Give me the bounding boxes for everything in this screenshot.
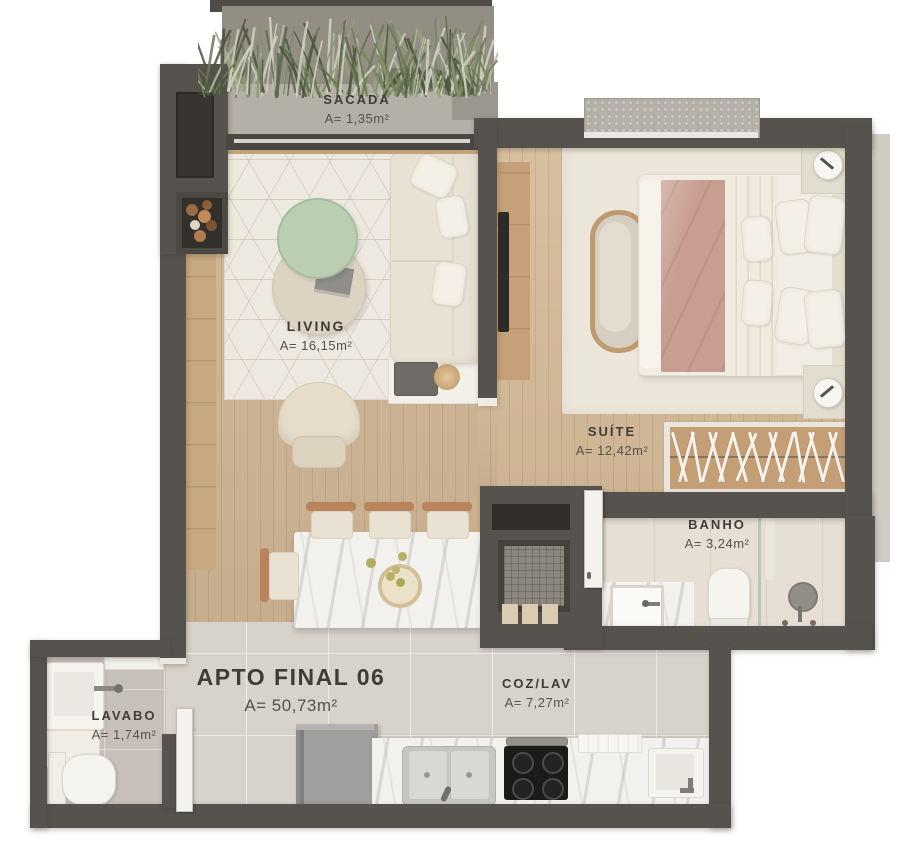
stove (504, 746, 568, 800)
wall-cap (160, 658, 186, 664)
room-name: SUÍTE (576, 424, 649, 439)
armchair-seat (292, 436, 346, 468)
room-area: A= 12,42m² (576, 443, 649, 458)
lavabo-faucet-head (114, 684, 123, 693)
lavabo-shelf (104, 657, 164, 670)
bed-blanket (661, 180, 727, 372)
room-label-sacada: SACADA A= 1,35m² (323, 92, 391, 126)
apartment-name: APTO FINAL 06 (197, 664, 386, 691)
pillow (803, 288, 847, 350)
firewood-log (186, 204, 198, 216)
firewood-log (202, 200, 212, 210)
side-table (394, 362, 438, 396)
dining-chair (364, 502, 414, 511)
entry-doormat (504, 546, 564, 606)
sink-drain (424, 772, 430, 778)
window-frame (584, 132, 758, 138)
fridge (296, 724, 378, 808)
entry-step (522, 604, 538, 624)
dried-flowers (434, 364, 460, 390)
wall-coz-right (709, 646, 731, 828)
dining-chair (260, 548, 269, 602)
room-label-lavabo: LAVABO A= 1,74m² (92, 708, 157, 742)
room-name: SACADA (323, 92, 391, 107)
fruit-pear (396, 578, 405, 587)
apartment-area: A= 50,73m² (197, 696, 386, 716)
lavabo-door (176, 708, 193, 812)
wall-niche (176, 92, 214, 178)
wall-lavabo-top (30, 640, 170, 657)
entry-door-handle (587, 572, 591, 579)
kitchen-towel (578, 734, 642, 753)
table-lamp (813, 378, 843, 408)
room-area: A= 1,35m² (323, 111, 391, 126)
bed-duvet-fold (725, 176, 777, 376)
shower-towel (766, 518, 775, 580)
laundry-faucet-spout (680, 788, 694, 793)
room-area: A= 1,74m² (92, 727, 157, 742)
entry-core-niche (492, 504, 570, 530)
fridge-handle (300, 730, 304, 804)
pillow (803, 194, 848, 256)
room-area: A= 16,15m² (280, 338, 353, 353)
fruit-pear (398, 552, 407, 561)
entry-step (502, 604, 518, 624)
shower-head (788, 582, 818, 612)
dining-chair-seat (311, 511, 353, 539)
side-table-green (277, 198, 358, 279)
wall-closet-bottom (598, 492, 872, 518)
pillow (740, 279, 773, 327)
banho-faucet-head (642, 600, 649, 607)
apartment-title: APTO FINAL 06 A= 50,73m² (197, 664, 386, 716)
stove-burner (512, 778, 534, 800)
room-label-suite: SUÍTE A= 12,42m² (576, 424, 649, 458)
shower-arm (798, 606, 802, 622)
balcony-plants (198, 0, 498, 98)
wall-lavabo-left (30, 640, 47, 828)
stove-burner (542, 752, 564, 774)
wall-tv (478, 126, 497, 404)
wall-suite-right (845, 128, 872, 516)
bedroom-bench-cushion (599, 222, 631, 332)
banho-faucet (648, 602, 660, 606)
stove-handle (506, 737, 568, 746)
wall-tv-cap (478, 398, 497, 406)
room-name: LIVING (280, 318, 353, 334)
balcony-door-glass (234, 139, 470, 143)
lavabo-sink-basin (54, 672, 94, 716)
dining-chair (422, 502, 472, 511)
room-label-coz-lav: COZ/LAV A= 7,27m² (502, 676, 572, 710)
wardrobe (670, 427, 848, 489)
toilet (62, 754, 116, 806)
stove-burner (512, 752, 534, 774)
room-name: BANHO (685, 517, 750, 532)
room-label-banho: BANHO A= 3,24m² (685, 517, 750, 551)
pillow (740, 215, 773, 263)
sink-drain (466, 772, 472, 778)
wall-bottom (30, 804, 731, 828)
dining-chair-seat (427, 511, 469, 539)
firewood-log (190, 220, 200, 230)
stove-burner (542, 778, 564, 800)
fruit-pear (392, 566, 400, 574)
room-area: A= 7,27m² (502, 695, 572, 710)
firewood-log (194, 230, 206, 242)
room-name: COZ/LAV (502, 676, 572, 691)
room-area: A= 3,24m² (685, 536, 750, 551)
room-label-living: LIVING A= 16,15m² (280, 318, 353, 353)
exterior-ledge (872, 134, 890, 562)
fruit-pear (366, 558, 376, 568)
tv (498, 212, 509, 332)
shower-glass (758, 512, 761, 626)
pillow (430, 260, 468, 308)
dining-chair-seat (269, 552, 299, 600)
dining-chair (306, 502, 356, 511)
dining-chair-seat (369, 511, 411, 539)
floor-plan: SACADA A= 1,35m² LIVING A= 16,15m² SUÍTE… (0, 0, 900, 852)
firewood-box (176, 192, 228, 254)
entry-step (542, 604, 558, 624)
fridge-top-edge (296, 724, 374, 730)
firewood-log (206, 220, 217, 231)
room-name: LAVABO (92, 708, 157, 723)
wall-console (186, 254, 216, 570)
